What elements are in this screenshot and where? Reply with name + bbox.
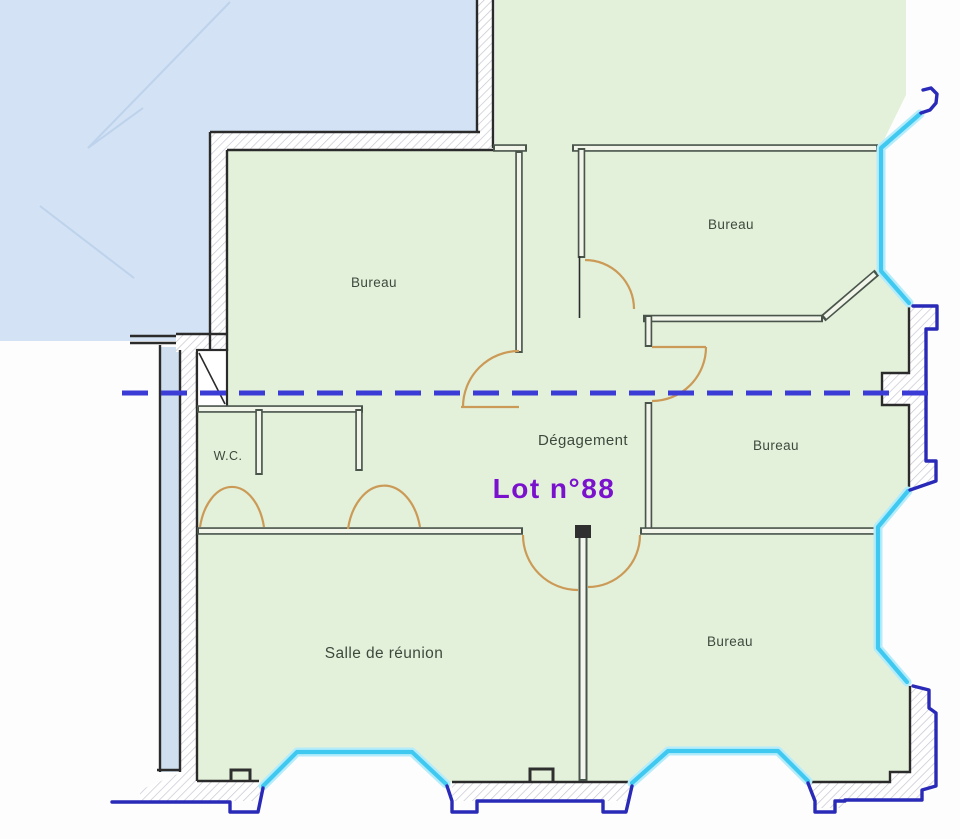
bay-window-left: [263, 752, 446, 786]
room-label-bureau-mid-right: Bureau: [753, 438, 799, 453]
window-top-right: [881, 114, 920, 303]
floor-plan-svg: Bureau Bureau Bureau Bureau Dégagement S…: [0, 0, 960, 839]
duct-shaft: [197, 350, 227, 407]
room-label-bureau-top-right: Bureau: [708, 217, 754, 232]
room-label-wc: W.C.: [214, 449, 243, 463]
room-label-bureau-bottom-right: Bureau: [707, 634, 753, 649]
room-label-degagement: Dégagement: [538, 432, 628, 449]
room-label-salle-reunion: Salle de réunion: [325, 645, 443, 662]
balcony-strip: [161, 347, 179, 772]
door-post: [575, 525, 591, 538]
room-label-bureau-top-left: Bureau: [351, 275, 397, 290]
floor-plan-page: Bureau Bureau Bureau Bureau Dégagement S…: [0, 0, 960, 839]
lot-number-label: Lot n°88: [493, 473, 616, 504]
